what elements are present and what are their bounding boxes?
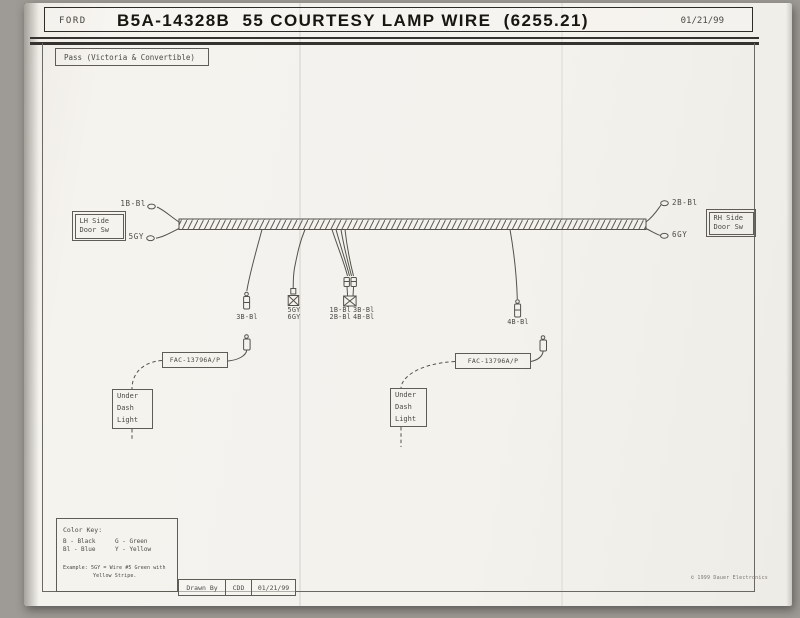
ford-brand-text: FORD <box>59 16 87 26</box>
wire-label-drop-c: 1B-Bl 3B-Bl 2B-Bl 4B-Bl <box>326 307 378 322</box>
under-dash-light-box-left: Under Dash Light <box>112 389 153 429</box>
scanned-wiring-diagram-page: FORD B5A-14328B 55 COURTESY LAMP WIRE (6… <box>0 0 800 618</box>
wire-label-drop-b-bottom: 6GY <box>283 314 305 322</box>
header-date: 01/21/99 <box>681 16 724 26</box>
title-block: Drawn By CDD 01/21/99 <box>178 579 296 596</box>
wire-label-lh-bottom: 5GY <box>106 233 144 241</box>
color-key-box: Color Key: B - Black Bl - Blue G - Green… <box>56 518 178 592</box>
drawn-by-label: Drawn By <box>179 580 225 595</box>
wire-label-drop-c-2: 2B-Bl <box>330 314 351 322</box>
wire-label-drop-d: 4B-Bl <box>500 319 536 327</box>
fac-connector-box-left: FAC-13796A/P <box>162 352 228 368</box>
fac-part-number-left: FAC-13796A/P <box>170 356 221 364</box>
wire-label-drop-a: 3B-Bl <box>229 314 265 322</box>
title-bar: FORD B5A-14328B 55 COURTESY LAMP WIRE (6… <box>44 7 753 32</box>
lamp-right-line3: Light <box>395 413 426 425</box>
lamp-left-line3: Light <box>117 414 152 426</box>
lamp-left-line2: Dash <box>117 402 152 414</box>
color-key-yellow: Y - Yellow <box>115 546 151 553</box>
wire-label-rh-top: 2B-Bl <box>672 199 698 207</box>
color-key-example-line1: Example: 5GY = Wire #5 Green with <box>63 565 166 571</box>
drawn-by-initials: CDD <box>225 580 251 595</box>
rh-switch-line2: Door Sw <box>714 223 753 232</box>
fac-connector-box-right: FAC-13796A/P <box>455 353 531 369</box>
rh-switch-line1: RH Side <box>714 214 753 223</box>
wire-label-lh-top: 1B-Bl <box>106 200 146 208</box>
wire-label-drop-b: 5GY 6GY <box>283 307 305 322</box>
copyright-note: © 1999 Dauer Electronics <box>690 575 768 581</box>
drawing-title: B5A-14328B 55 COURTESY LAMP WIRE (6255.2… <box>117 11 589 31</box>
color-key-heading: Color Key: <box>63 526 102 534</box>
fac-part-number-right: FAC-13796A/P <box>468 357 519 365</box>
color-key-example-line2: Yellow Stripe. <box>93 573 137 579</box>
color-key-green: G - Green <box>115 538 148 545</box>
wire-label-drop-c-4: 4B-Bl <box>353 314 374 322</box>
drawn-by-date: 01/21/99 <box>251 580 295 595</box>
color-key-blue: Bl - Blue <box>63 546 96 553</box>
drawing-frame <box>42 43 755 592</box>
under-dash-light-box-right: Under Dash Light <box>390 388 427 427</box>
color-key-black: B - Black <box>63 538 96 545</box>
lh-switch-line1: LH Side <box>80 217 123 226</box>
lamp-right-line2: Dash <box>395 401 426 413</box>
variant-label-box: Pass (Victoria & Convertible) <box>55 48 209 66</box>
lamp-right-line1: Under <box>395 389 426 401</box>
wire-label-rh-bottom: 6GY <box>672 231 687 239</box>
variant-label: Pass (Victoria & Convertible) <box>64 53 195 62</box>
lamp-left-line1: Under <box>117 390 152 402</box>
rh-door-switch-box: RH Side Door Sw <box>706 209 756 237</box>
